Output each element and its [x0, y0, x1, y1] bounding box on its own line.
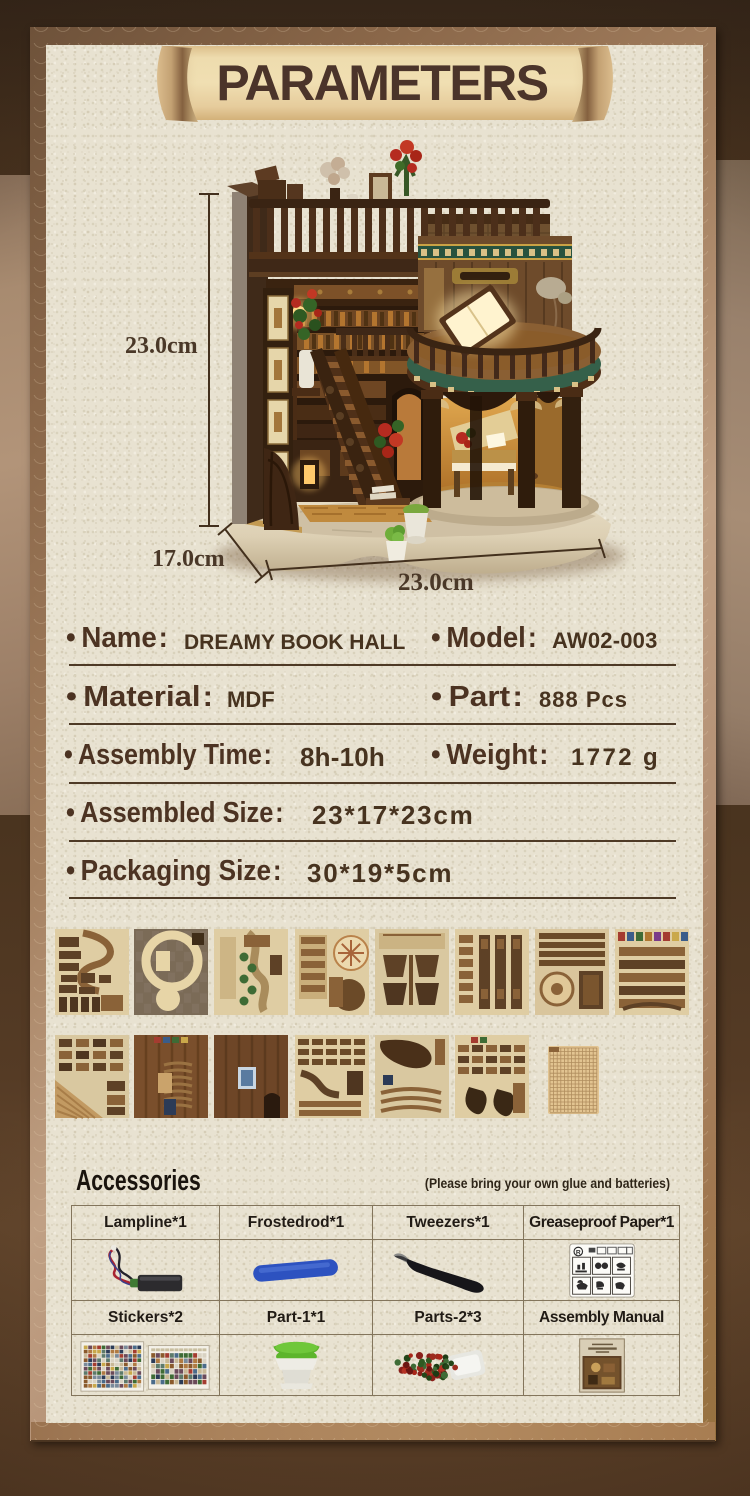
- svg-text:17.0cm: 17.0cm: [152, 546, 225, 572]
- svg-text:R: R: [575, 1249, 580, 1256]
- svg-text:PARAMETERS: PARAMETERS: [216, 55, 547, 111]
- svg-text:23.0cm: 23.0cm: [125, 333, 198, 359]
- svg-text:23.0cm: 23.0cm: [398, 569, 474, 596]
